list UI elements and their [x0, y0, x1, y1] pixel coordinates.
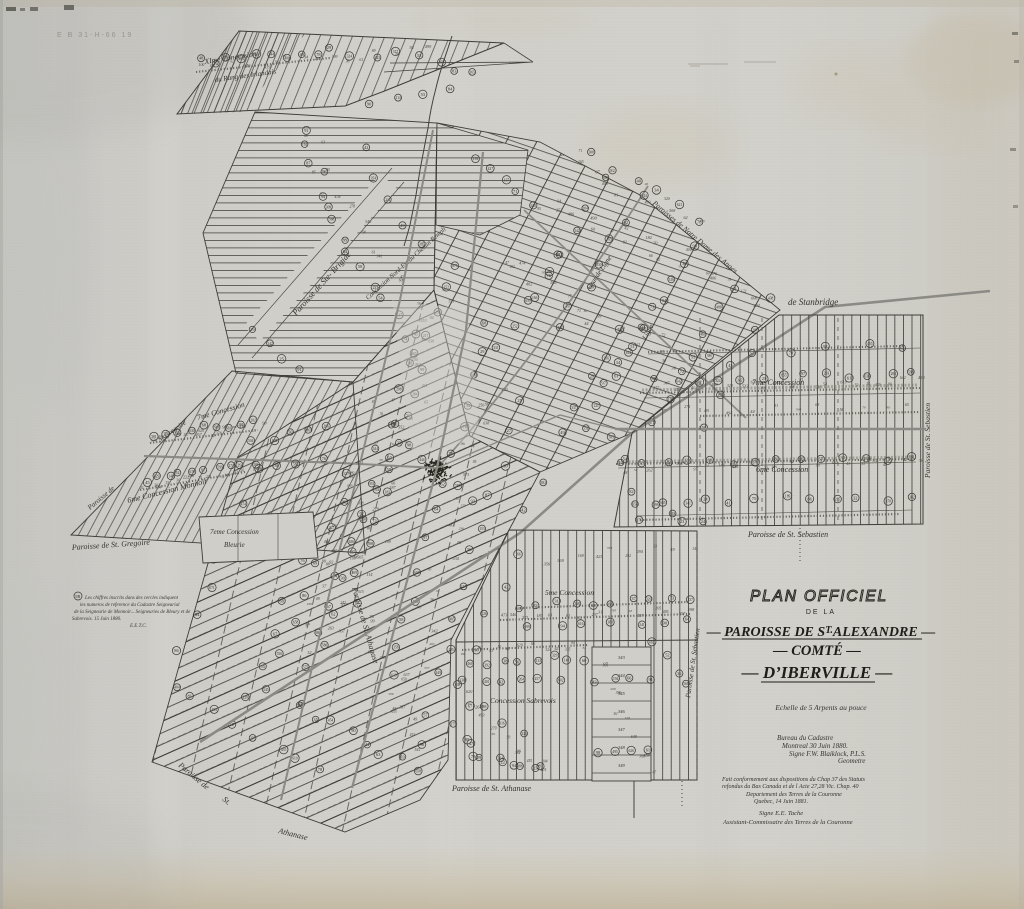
- svg-text:52: 52: [634, 468, 638, 472]
- svg-text:— COMTÉ —: — COMTÉ —: [772, 642, 861, 659]
- svg-text:438: 438: [768, 297, 774, 301]
- svg-text:82: 82: [211, 434, 215, 438]
- svg-text:71: 71: [579, 149, 583, 153]
- svg-text:Quebec, 14 Juin 1881.: Quebec, 14 Juin 1881.: [754, 798, 808, 805]
- svg-text:94: 94: [557, 200, 561, 204]
- svg-text:109: 109: [711, 382, 718, 387]
- svg-text:104: 104: [542, 760, 548, 764]
- svg-text:419: 419: [264, 64, 271, 69]
- svg-text:587: 587: [293, 463, 299, 467]
- svg-text:316: 316: [669, 278, 675, 282]
- svg-text:439: 439: [875, 383, 881, 387]
- svg-text:569: 569: [557, 558, 564, 563]
- svg-text:533: 533: [742, 384, 748, 389]
- svg-text:140: 140: [224, 472, 230, 477]
- svg-text:52: 52: [308, 651, 312, 655]
- svg-text:697: 697: [439, 61, 445, 65]
- svg-text:349: 349: [618, 763, 626, 768]
- svg-text:Geometre: Geometre: [838, 757, 865, 765]
- svg-text:241: 241: [639, 623, 645, 627]
- svg-text:78: 78: [442, 288, 446, 292]
- svg-text:598: 598: [368, 542, 374, 546]
- svg-text:689: 689: [603, 176, 609, 180]
- svg-text:52: 52: [665, 653, 669, 658]
- svg-text:32: 32: [436, 589, 440, 593]
- svg-text:693: 693: [414, 571, 420, 575]
- svg-text:453: 453: [212, 708, 218, 712]
- svg-text:460: 460: [467, 662, 473, 666]
- svg-text:220: 220: [243, 695, 249, 699]
- svg-text:194: 194: [613, 677, 619, 681]
- svg-text:658: 658: [416, 770, 422, 774]
- svg-text:133: 133: [536, 659, 542, 663]
- svg-text:401: 401: [484, 680, 490, 684]
- svg-text:162: 162: [635, 343, 641, 347]
- svg-text:50: 50: [240, 468, 244, 472]
- svg-text:620: 620: [466, 689, 473, 694]
- svg-text:36: 36: [403, 438, 407, 443]
- svg-text:294: 294: [637, 549, 643, 554]
- svg-text:92: 92: [750, 463, 754, 467]
- svg-text:389: 389: [760, 385, 766, 390]
- svg-text:192: 192: [509, 265, 515, 269]
- svg-text:642: 642: [900, 376, 906, 380]
- svg-text:81: 81: [799, 377, 803, 382]
- svg-text:109: 109: [385, 539, 391, 544]
- svg-text:608: 608: [751, 296, 758, 301]
- svg-text:404: 404: [174, 686, 180, 690]
- svg-text:278: 278: [350, 204, 356, 208]
- svg-text:91: 91: [649, 677, 653, 682]
- svg-text:NB: NB: [74, 594, 81, 599]
- svg-text:598: 598: [688, 607, 695, 612]
- svg-text:655: 655: [781, 374, 787, 378]
- svg-text:47: 47: [391, 398, 395, 402]
- svg-text:408: 408: [602, 181, 608, 186]
- svg-text:62: 62: [624, 220, 628, 225]
- svg-text:662: 662: [649, 640, 655, 644]
- svg-text:423: 423: [596, 554, 603, 559]
- svg-text:148: 148: [564, 659, 570, 663]
- svg-text:445: 445: [732, 464, 739, 469]
- svg-text:588: 588: [175, 432, 180, 436]
- svg-text:36: 36: [176, 478, 180, 482]
- svg-text:493: 493: [479, 713, 485, 718]
- svg-text:74: 74: [705, 463, 709, 467]
- svg-text:100: 100: [199, 63, 205, 67]
- svg-text:610: 610: [292, 757, 298, 761]
- svg-text:561: 561: [683, 682, 689, 686]
- svg-text:72: 72: [320, 191, 324, 196]
- svg-text:42: 42: [521, 507, 525, 512]
- svg-text:423: 423: [375, 56, 381, 60]
- svg-text:233: 233: [824, 372, 830, 376]
- svg-text:444: 444: [557, 326, 563, 330]
- svg-text:629: 629: [199, 429, 205, 433]
- svg-text:541: 541: [415, 747, 421, 752]
- svg-text:Bleurie: Bleurie: [224, 541, 245, 549]
- svg-text:340: 340: [377, 254, 383, 258]
- svg-text:297: 297: [752, 328, 758, 332]
- svg-text:71: 71: [577, 308, 581, 313]
- svg-text:195: 195: [448, 648, 454, 652]
- svg-text:344: 344: [373, 447, 379, 451]
- svg-text:539: 539: [664, 463, 670, 467]
- svg-text:Assistant-Commissaire des Terr: Assistant-Commissaire des Terres de la C…: [722, 819, 853, 826]
- svg-text:506: 506: [542, 270, 548, 274]
- svg-text:530: 530: [596, 263, 602, 267]
- svg-text:Paroisse de St. Sebastien: Paroisse de St. Sebastien: [747, 530, 828, 539]
- svg-text:52: 52: [175, 470, 179, 475]
- svg-text:63: 63: [548, 613, 552, 618]
- svg-text:331: 331: [493, 346, 499, 350]
- svg-text:312: 312: [872, 459, 878, 463]
- svg-text:42: 42: [625, 226, 629, 230]
- svg-text:545: 545: [263, 688, 269, 692]
- svg-text:342: 342: [737, 379, 743, 383]
- svg-text:473: 473: [501, 612, 508, 617]
- svg-text:148: 148: [168, 474, 174, 478]
- svg-text:486: 486: [568, 212, 575, 217]
- svg-text:189: 189: [785, 494, 791, 498]
- svg-text:341: 341: [685, 502, 691, 506]
- svg-text:63: 63: [815, 402, 819, 407]
- svg-text:91: 91: [297, 367, 301, 372]
- svg-text:165: 165: [578, 160, 584, 164]
- svg-text:638: 638: [864, 375, 870, 379]
- svg-text:489: 489: [589, 286, 595, 290]
- svg-text:382: 382: [909, 495, 915, 499]
- svg-text:162: 162: [302, 143, 308, 147]
- svg-text:31: 31: [140, 486, 144, 490]
- svg-text:303: 303: [223, 56, 229, 60]
- svg-text:552: 552: [398, 424, 404, 429]
- svg-text:30: 30: [613, 712, 617, 716]
- svg-text:63: 63: [321, 140, 325, 145]
- svg-text:81: 81: [566, 613, 570, 618]
- svg-text:146: 146: [718, 462, 725, 467]
- svg-text:279: 279: [373, 507, 380, 512]
- svg-text:61: 61: [646, 747, 650, 752]
- svg-text:585: 585: [455, 484, 461, 488]
- svg-text:346: 346: [618, 709, 626, 714]
- svg-text:651: 651: [525, 299, 531, 303]
- svg-text:195: 195: [350, 556, 356, 560]
- svg-text:63: 63: [629, 609, 633, 613]
- svg-text:81: 81: [188, 694, 192, 699]
- svg-text:199: 199: [332, 55, 338, 59]
- svg-text:390: 390: [616, 691, 622, 695]
- svg-text:204: 204: [583, 207, 589, 211]
- svg-text:182: 182: [646, 235, 653, 240]
- svg-text:183: 183: [385, 490, 391, 494]
- svg-text:598: 598: [908, 370, 914, 374]
- svg-text:49: 49: [316, 597, 320, 601]
- svg-text:495: 495: [612, 750, 618, 754]
- svg-text:367: 367: [339, 629, 346, 634]
- svg-text:619: 619: [840, 380, 847, 385]
- svg-text:63: 63: [654, 545, 658, 549]
- svg-text:444: 444: [419, 458, 425, 462]
- svg-text:44: 44: [561, 153, 565, 157]
- svg-text:36: 36: [430, 598, 434, 602]
- svg-text:505: 505: [609, 435, 615, 439]
- svg-text:73: 73: [198, 476, 202, 480]
- svg-text:53: 53: [855, 383, 859, 387]
- svg-text:72: 72: [251, 428, 255, 432]
- svg-text:49: 49: [610, 229, 614, 233]
- svg-text:455: 455: [527, 759, 533, 763]
- svg-text:89: 89: [372, 49, 376, 53]
- svg-text:258: 258: [188, 473, 195, 478]
- svg-text:203: 203: [891, 372, 897, 376]
- svg-text:357: 357: [679, 611, 686, 616]
- svg-text:279: 279: [491, 727, 497, 731]
- svg-text:32: 32: [799, 460, 803, 464]
- svg-text:463: 463: [700, 333, 706, 337]
- svg-text:632: 632: [832, 460, 838, 465]
- svg-text:40: 40: [645, 182, 649, 186]
- svg-text:107: 107: [183, 433, 189, 437]
- svg-text:499: 499: [425, 44, 432, 49]
- svg-text:528: 528: [815, 385, 821, 389]
- svg-text:252: 252: [556, 209, 562, 213]
- svg-text:153: 153: [479, 527, 485, 531]
- svg-text:344: 344: [641, 194, 647, 198]
- svg-text:175: 175: [451, 722, 457, 726]
- svg-text:91: 91: [304, 128, 308, 133]
- svg-text:621: 621: [677, 203, 683, 207]
- svg-text:94: 94: [772, 466, 776, 470]
- svg-text:106: 106: [307, 602, 313, 606]
- svg-text:378: 378: [216, 432, 222, 436]
- svg-text:de Stanbridge: de Stanbridge: [788, 297, 838, 307]
- svg-text:635: 635: [660, 501, 666, 505]
- svg-text:82: 82: [584, 309, 588, 313]
- svg-text:82: 82: [610, 168, 614, 173]
- svg-text:137: 137: [504, 178, 510, 182]
- svg-text:Paroisse de St. Athana: Paroisse de St. Athanase: [451, 784, 532, 793]
- svg-text:274: 274: [684, 405, 690, 409]
- svg-text:458: 458: [675, 388, 681, 392]
- svg-text:61: 61: [847, 376, 851, 381]
- svg-text:71: 71: [449, 451, 453, 456]
- svg-text:62: 62: [790, 459, 794, 464]
- svg-text:488: 488: [716, 305, 722, 309]
- svg-text:34: 34: [304, 55, 308, 59]
- svg-text:E.E.T.C.: E.E.T.C.: [129, 624, 147, 629]
- svg-text:504: 504: [248, 439, 254, 443]
- svg-text:474: 474: [519, 261, 525, 266]
- svg-text:584: 584: [155, 484, 161, 489]
- svg-text:59: 59: [507, 736, 511, 740]
- svg-text:32: 32: [853, 495, 857, 500]
- svg-text:262: 262: [646, 468, 652, 473]
- svg-text:552: 552: [158, 436, 164, 440]
- svg-text:35: 35: [165, 481, 169, 485]
- svg-text:252: 252: [576, 617, 582, 621]
- svg-text:637: 637: [404, 672, 411, 677]
- svg-text:253: 253: [389, 423, 395, 427]
- svg-text:326: 326: [521, 732, 527, 736]
- svg-text:61: 61: [359, 58, 363, 62]
- svg-text:92: 92: [230, 60, 234, 64]
- svg-text:333: 333: [391, 709, 397, 714]
- svg-text:308: 308: [589, 151, 595, 155]
- svg-text:294: 294: [754, 303, 760, 308]
- svg-text:62: 62: [684, 215, 688, 220]
- svg-text:91: 91: [774, 403, 778, 408]
- svg-text:92: 92: [234, 470, 238, 474]
- svg-text:450: 450: [918, 375, 925, 380]
- svg-text:78: 78: [380, 413, 384, 417]
- svg-text:82: 82: [629, 489, 633, 494]
- svg-text:85: 85: [312, 170, 316, 174]
- svg-text:354: 354: [607, 546, 613, 550]
- svg-text:237: 237: [688, 598, 694, 602]
- svg-text:50: 50: [498, 645, 502, 649]
- svg-text:494: 494: [726, 411, 732, 416]
- svg-text:630: 630: [531, 204, 537, 208]
- svg-text:552: 552: [583, 427, 589, 431]
- svg-text:188: 188: [517, 765, 523, 769]
- svg-text:90: 90: [380, 458, 384, 462]
- svg-text:158: 158: [393, 646, 399, 650]
- svg-text:79: 79: [862, 406, 866, 410]
- svg-text:31: 31: [598, 610, 602, 615]
- svg-text:599: 599: [217, 465, 223, 469]
- svg-text:264: 264: [475, 705, 482, 710]
- svg-text:385: 385: [419, 243, 425, 247]
- svg-text:121: 121: [593, 404, 599, 408]
- svg-text:— PAROISSE DE ST.ALEXANDRE —: — PAROISSE DE ST.ALEXANDRE —: [706, 625, 935, 640]
- svg-text:165: 165: [470, 70, 476, 74]
- svg-text:557: 557: [341, 602, 348, 607]
- svg-text:42: 42: [656, 256, 660, 261]
- svg-text:202: 202: [250, 418, 256, 422]
- svg-text:335: 335: [565, 648, 571, 652]
- svg-text:183: 183: [536, 613, 542, 618]
- svg-text:95: 95: [537, 207, 541, 211]
- svg-text:236: 236: [459, 527, 465, 531]
- svg-text:304: 304: [676, 461, 683, 466]
- svg-text:320: 320: [646, 597, 652, 601]
- svg-text:400: 400: [686, 248, 692, 252]
- svg-text:370: 370: [886, 500, 892, 504]
- svg-text:94: 94: [571, 640, 575, 645]
- svg-text:41: 41: [726, 500, 730, 505]
- svg-text:582: 582: [466, 702, 472, 706]
- svg-text:36: 36: [346, 59, 350, 63]
- svg-text:5me Concession: 5me Concession: [545, 588, 594, 597]
- svg-text:144: 144: [269, 53, 275, 57]
- svg-text:329: 329: [727, 383, 733, 388]
- svg-text:235: 235: [315, 57, 321, 61]
- svg-text:595: 595: [611, 609, 616, 613]
- svg-text:623: 623: [555, 647, 561, 651]
- svg-text:342: 342: [431, 629, 438, 634]
- svg-text:392: 392: [484, 663, 490, 667]
- svg-text:573: 573: [522, 616, 528, 620]
- svg-text:648: 648: [631, 734, 637, 739]
- svg-text:243: 243: [416, 606, 422, 610]
- svg-text:602: 602: [558, 679, 564, 683]
- svg-text:220: 220: [502, 388, 508, 392]
- svg-text:402: 402: [526, 281, 532, 286]
- svg-text:122: 122: [741, 289, 747, 293]
- svg-text:309: 309: [326, 205, 332, 209]
- svg-text:169: 169: [578, 553, 584, 558]
- svg-text:Echelle de 5 Arpents au pouce: Echelle de 5 Arpents au pouce: [774, 703, 867, 712]
- svg-text:85: 85: [326, 168, 330, 172]
- svg-text:53: 53: [678, 264, 682, 268]
- svg-text:69: 69: [210, 64, 214, 68]
- svg-text:506: 506: [389, 692, 394, 696]
- svg-text:22: 22: [501, 760, 505, 765]
- svg-text:320: 320: [664, 197, 670, 201]
- svg-text:96: 96: [492, 732, 496, 736]
- svg-text:618: 618: [670, 512, 676, 516]
- svg-text:31: 31: [349, 570, 353, 574]
- svg-text:551: 551: [449, 300, 455, 304]
- svg-text:392: 392: [541, 481, 547, 485]
- svg-text:337: 337: [571, 406, 577, 410]
- svg-text:407: 407: [429, 642, 435, 646]
- svg-text:633: 633: [272, 439, 278, 443]
- svg-text:534: 534: [453, 556, 459, 561]
- svg-text:497: 497: [637, 613, 644, 618]
- svg-text:95: 95: [473, 460, 477, 464]
- svg-text:568: 568: [329, 218, 335, 222]
- svg-text:165: 165: [606, 237, 612, 241]
- svg-text:417: 417: [461, 585, 467, 589]
- svg-text:70: 70: [653, 241, 657, 246]
- svg-text:81: 81: [614, 193, 618, 197]
- svg-text:65: 65: [905, 402, 909, 407]
- svg-text:518: 518: [625, 716, 631, 720]
- svg-text:237: 237: [373, 286, 379, 290]
- svg-text:343: 343: [618, 655, 626, 660]
- svg-text:626: 626: [629, 749, 635, 753]
- svg-text:437: 437: [488, 167, 494, 171]
- svg-text:68: 68: [791, 385, 795, 389]
- svg-text:PLAN OFFICIEL: PLAN OFFICIEL: [750, 588, 888, 605]
- svg-text:619: 619: [391, 673, 397, 677]
- svg-text:537: 537: [424, 666, 429, 670]
- svg-text:546: 546: [510, 612, 517, 617]
- svg-text:556: 556: [277, 652, 283, 656]
- svg-text:580: 580: [322, 644, 328, 648]
- svg-text:671: 671: [209, 586, 215, 590]
- svg-text:397: 397: [250, 736, 256, 740]
- svg-text:les numeros de reference du Ca: les numeros de reference du Cadastre Sei…: [80, 603, 180, 608]
- svg-text:215: 215: [835, 498, 841, 502]
- svg-text:Sabrevois. 15 Juin 1880: Sabrevois. 15 Juin 1880.: [72, 617, 121, 622]
- svg-text:629: 629: [517, 643, 523, 648]
- svg-text:79: 79: [728, 278, 732, 282]
- svg-text:90: 90: [886, 405, 890, 409]
- svg-text:483: 483: [448, 524, 454, 528]
- svg-text:42: 42: [903, 458, 907, 462]
- svg-text:142: 142: [574, 229, 580, 233]
- svg-text:347: 347: [618, 727, 626, 732]
- svg-text:263: 263: [328, 625, 334, 630]
- svg-text:434: 434: [334, 194, 340, 199]
- svg-text:406: 406: [710, 276, 717, 281]
- svg-text:58: 58: [840, 408, 844, 412]
- svg-text:282: 282: [625, 554, 631, 558]
- svg-text:206: 206: [324, 425, 330, 429]
